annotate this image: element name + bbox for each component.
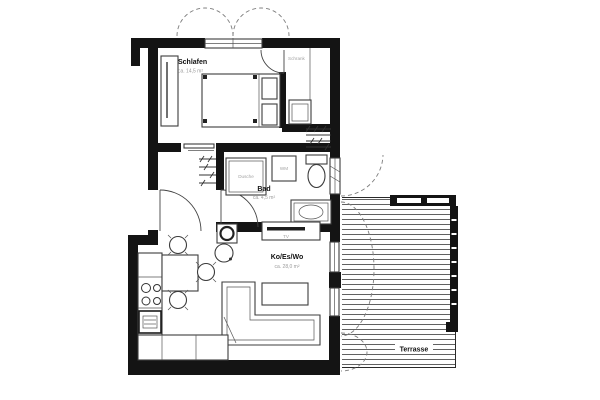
wall-top-left-stub [131, 48, 140, 66]
closet-door [261, 50, 284, 73]
wardrobe [161, 56, 178, 126]
washer-bath: WM [272, 156, 296, 181]
wall-top-left [131, 38, 205, 48]
side-table [215, 244, 233, 262]
wall-right-mullion [329, 272, 341, 288]
washbasin [291, 200, 331, 224]
double-bed [202, 74, 280, 127]
dining-chair [168, 290, 188, 310]
bath-window-swing-arc [341, 155, 383, 196]
wall-bedroom-hall-left [148, 143, 181, 152]
room-label-closet: Schrank [288, 56, 306, 61]
room-area-bath: ca. 4,5 m² [253, 195, 276, 201]
hall [199, 156, 216, 186]
living-room: TV Ko/Es/Wo ca. 28,0 m² [215, 222, 320, 345]
wall-left-mid [148, 152, 158, 190]
wall-bottom [128, 360, 340, 375]
terrace-railing-post [446, 322, 458, 332]
kitchen-sink [139, 311, 161, 333]
sideboard: TV [262, 222, 320, 240]
tv-label: TV [283, 234, 290, 239]
terrace-bench-slot [427, 198, 449, 203]
washer-label: WM [280, 166, 288, 171]
coat-rack-icon [199, 156, 216, 186]
terrace-deck [342, 197, 456, 368]
wall-bedroom-bath [216, 143, 340, 152]
dining-table [162, 255, 198, 291]
room-area-living: ca. 28,0 m² [274, 264, 299, 270]
kitchen-counter-bottom [138, 335, 228, 360]
terrace-bench-slot [397, 198, 421, 203]
room-label-bath: Bad [257, 186, 270, 193]
washing-machine [289, 100, 311, 124]
room-area-bedroom: ca. 14,5 m² [178, 69, 203, 75]
room-label-terrace: Terrasse [400, 347, 429, 354]
shower-label: Dusche [238, 174, 254, 179]
wall-left-living [128, 235, 138, 375]
entrance-door [160, 190, 201, 231]
room-label-living: Ko/Es/Wo [271, 254, 304, 261]
wall-hall-bath [216, 152, 224, 190]
wall-right-upper [330, 38, 340, 158]
bathroom: Dusche WM Bad ca. 4,5 m² [226, 155, 331, 224]
toilet [306, 155, 327, 188]
floor-plan-drawing: Terrasse [0, 0, 600, 400]
closet-room: Schrank [288, 48, 311, 124]
floor-plan-page: Terrasse [0, 0, 600, 400]
wall-top-right [262, 38, 330, 48]
wall-right-lower [329, 316, 340, 362]
coffee-table [262, 283, 308, 305]
dining-chair [196, 262, 216, 282]
terrace: Terrasse [341, 155, 458, 371]
tv [267, 227, 305, 231]
bedroom-window-swing-left [177, 8, 233, 36]
stove [217, 224, 237, 243]
wall-left-upper [148, 48, 158, 143]
dining-chair [168, 235, 188, 255]
bath-window [330, 158, 340, 194]
room-label-bedroom: Schlafen [178, 59, 207, 66]
bedroom-sliding-door [184, 144, 214, 151]
bedroom-window-swing-right [233, 8, 289, 36]
